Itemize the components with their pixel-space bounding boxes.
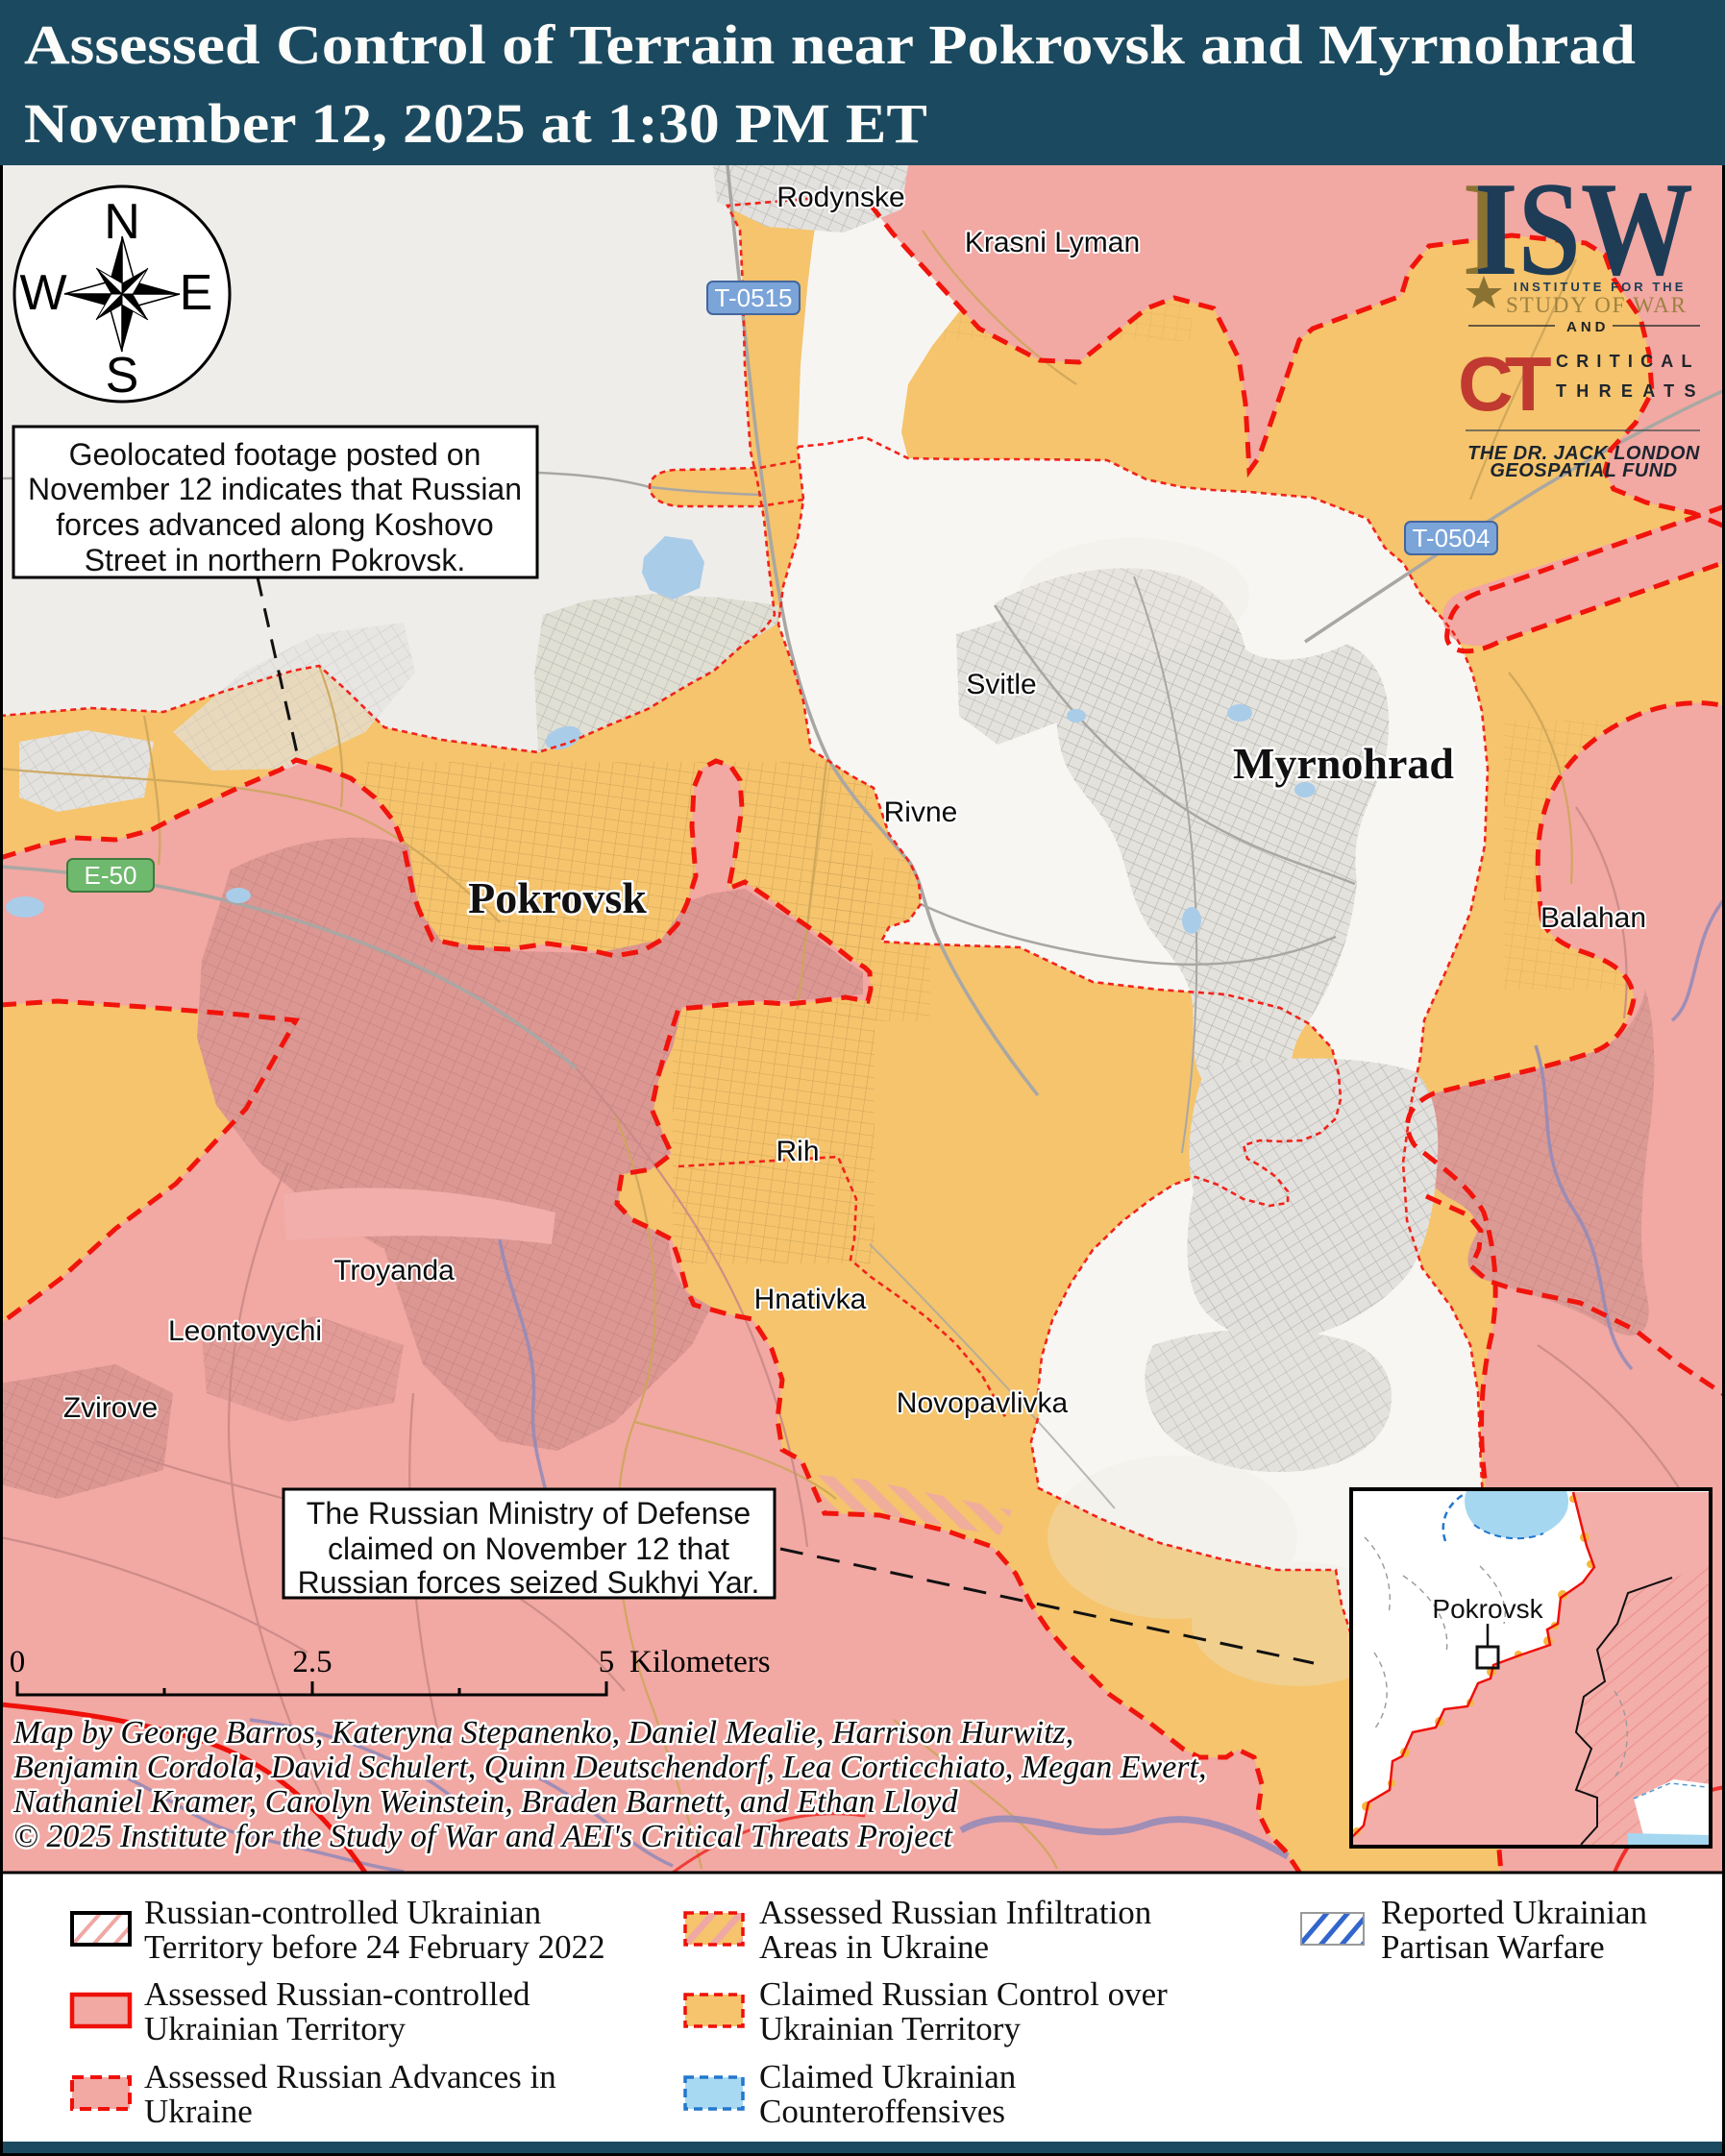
svg-text:Troyanda: Troyanda <box>333 1255 455 1286</box>
svg-text:Counteroffensives: Counteroffensives <box>759 2093 1005 2130</box>
svg-text:Kilometers: Kilometers <box>629 1645 771 1679</box>
svg-text:S: S <box>106 348 139 404</box>
svg-text:Map by George Barros, Kateryna: Map by George Barros, Kateryna Stepanenk… <box>12 1715 1073 1751</box>
svg-text:Russian forces seized Sukhyi Y: Russian forces seized Sukhyi Yar. <box>298 1565 760 1600</box>
svg-text:5: 5 <box>599 1645 615 1679</box>
svg-text:Pokrovsk: Pokrovsk <box>468 873 647 922</box>
svg-text:claimed on November 12 that: claimed on November 12 that <box>328 1531 729 1566</box>
svg-text:November 12 indicates that Rus: November 12 indicates that Russian <box>28 472 522 506</box>
svg-text:Assessed Russian Infiltration: Assessed Russian Infiltration <box>759 1894 1151 1931</box>
svg-text:Leontovychi: Leontovychi <box>168 1315 322 1347</box>
svg-text:Rodynske: Rodynske <box>776 182 904 213</box>
svg-text:Assessed Control of Terrain ne: Assessed Control of Terrain near Pokrovs… <box>24 13 1636 76</box>
svg-text:forces advanced along Koshovo: forces advanced along Koshovo <box>56 507 493 542</box>
svg-text:November 12, 2025 at 1:30 PM E: November 12, 2025 at 1:30 PM ET <box>24 92 927 155</box>
svg-text:Ukrainian Territory: Ukrainian Territory <box>144 2010 406 2047</box>
svg-text:Geolocated footage posted on: Geolocated footage posted on <box>69 437 481 472</box>
svg-text:Territory before 24 February 2: Territory before 24 February 2022 <box>144 1928 605 1966</box>
svg-text:INSTITUTE FOR THE: INSTITUTE FOR THE <box>1514 280 1687 294</box>
svg-text:Nathaniel Kramer, Carolyn Wein: Nathaniel Kramer, Carolyn Weinstein, Bra… <box>12 1784 958 1820</box>
svg-text:Assessed Russian Advances in: Assessed Russian Advances in <box>144 2058 556 2095</box>
svg-text:E-50: E-50 <box>85 861 137 890</box>
svg-text:Krasni Lyman: Krasni Lyman <box>965 227 1140 258</box>
svg-text:GEOSPATIAL FUND: GEOSPATIAL FUND <box>1490 460 1677 481</box>
svg-text:Ukrainian Territory: Ukrainian Territory <box>759 2010 1021 2047</box>
svg-text:Balahan: Balahan <box>1540 902 1646 934</box>
svg-text:Ukraine: Ukraine <box>144 2093 253 2130</box>
svg-text:Street in northern Pokrovsk.: Street in northern Pokrovsk. <box>85 543 466 577</box>
svg-text:Assessed Russian-controlled: Assessed Russian-controlled <box>144 1975 530 2013</box>
svg-text:Rih: Rih <box>776 1136 819 1167</box>
svg-text:Russian-controlled Ukrainian: Russian-controlled Ukrainian <box>144 1894 541 1931</box>
svg-text:CT: CT <box>1458 341 1552 427</box>
svg-text:STUDY OF WAR: STUDY OF WAR <box>1506 293 1688 317</box>
svg-text:The Russian Ministry of Defens: The Russian Ministry of Defense <box>307 1496 751 1531</box>
svg-text:Svitle: Svitle <box>966 669 1036 700</box>
svg-text:Claimed Russian Control over: Claimed Russian Control over <box>759 1975 1168 2013</box>
svg-text:E: E <box>180 265 213 321</box>
svg-text:0: 0 <box>10 1645 26 1679</box>
svg-text:Zvirove: Zvirove <box>63 1392 158 1424</box>
svg-text:Myrnohrad: Myrnohrad <box>1233 739 1454 788</box>
svg-text:© 2025 Institute for the Study: © 2025 Institute for the Study of War an… <box>13 1819 953 1854</box>
svg-text:Pokrovsk: Pokrovsk <box>1432 1594 1543 1624</box>
svg-text:Novopavlivka: Novopavlivka <box>897 1387 1069 1419</box>
svg-text:THREATS: THREATS <box>1556 381 1700 401</box>
svg-text:Partisan Warfare: Partisan Warfare <box>1381 1928 1605 1966</box>
svg-text:AND: AND <box>1566 319 1610 335</box>
svg-text:N: N <box>104 194 140 250</box>
svg-text:W: W <box>19 265 66 321</box>
svg-text:T-0504: T-0504 <box>1413 524 1491 552</box>
svg-text:Rivne: Rivne <box>884 796 958 828</box>
svg-text:Hnativka: Hnativka <box>754 1284 867 1315</box>
svg-text:Areas in Ukraine: Areas in Ukraine <box>759 1928 989 1966</box>
svg-text:Reported Ukrainian: Reported Ukrainian <box>1381 1894 1647 1931</box>
svg-text:T-0515: T-0515 <box>715 283 793 312</box>
svg-text:Benjamin Cordola, David Schule: Benjamin Cordola, David Schulert, Quinn … <box>13 1750 1206 1785</box>
svg-text:2.5: 2.5 <box>292 1645 332 1679</box>
svg-text:Claimed Ukrainian: Claimed Ukrainian <box>759 2058 1016 2095</box>
